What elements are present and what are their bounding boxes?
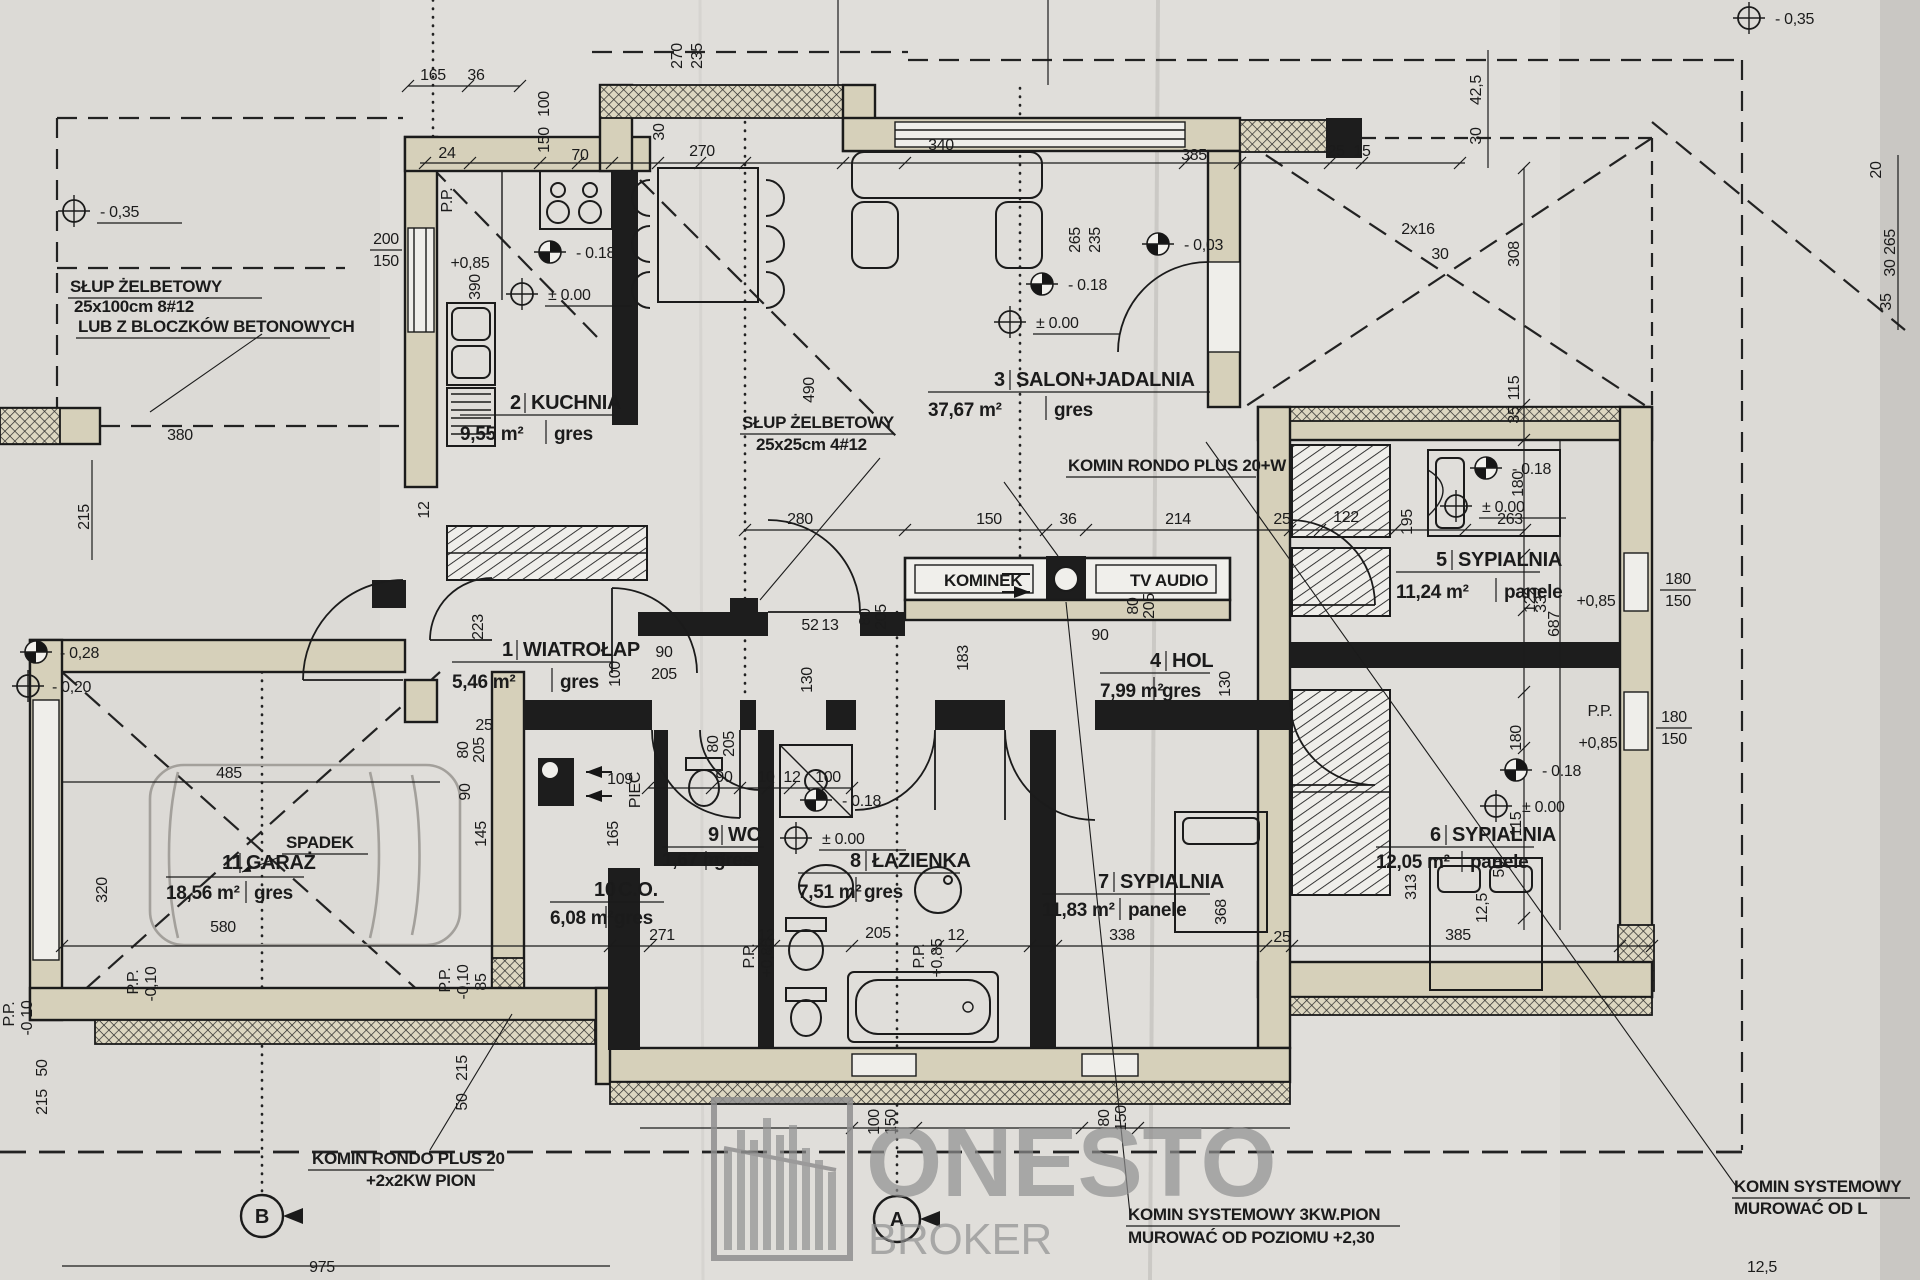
sill-level: -0,10 (455, 964, 472, 999)
window-dim: 180 (1661, 709, 1687, 726)
bath-window (852, 1054, 916, 1076)
dim-text: 25 (1273, 511, 1291, 528)
dim-text: 380 (167, 427, 193, 444)
dim-text: 320 (94, 877, 111, 903)
dim-text: 130 (799, 667, 816, 693)
dim-text: 215 (34, 1089, 51, 1115)
dim-text: 15 (1353, 143, 1371, 160)
dim-text: 580 (210, 919, 236, 936)
dim-text: 205 (721, 731, 738, 757)
dim-text: 368 (1213, 899, 1230, 925)
level-value: - 0,28 (60, 645, 100, 662)
dim-text: 25 (1327, 143, 1345, 160)
annotation-komin-prawy: MUROWAĆ OD L (1734, 1199, 1867, 1218)
dim-text: 183 (955, 645, 972, 671)
room-name: WC (728, 824, 761, 846)
sill-level: -0,10 (19, 1000, 36, 1035)
annotation-tv-audio: TV AUDIO (1130, 571, 1208, 590)
dim-text: 90 (715, 769, 733, 786)
dim-text: 12 (416, 501, 433, 519)
dim-text: 271 (649, 927, 675, 944)
room-floor: gres (560, 672, 599, 693)
window-dim: 180 (1665, 571, 1691, 588)
dim-text: 214 (1165, 511, 1191, 528)
dim-text: 50 (454, 1093, 471, 1111)
dim-text: 70 (571, 147, 589, 164)
level-value: - 0.18 (1068, 277, 1108, 294)
dim-text: 145 (473, 821, 490, 847)
dim-text: 687 (1546, 611, 1563, 637)
dim-text: 215 (454, 1055, 471, 1081)
dim-text: 180 (1508, 725, 1525, 751)
dim-text: 100 (536, 91, 553, 117)
dim-text: 223 (470, 614, 487, 640)
dim-text: 13 (821, 617, 839, 634)
dim-text: 30 (1431, 246, 1449, 263)
dim-text: 90 (457, 783, 474, 801)
window-dim: 200 (373, 231, 399, 248)
window-dim: 150 (1661, 731, 1687, 748)
sill-level: +0,85 (1579, 735, 1618, 752)
room-floor: gres (554, 424, 593, 445)
window-dim: 390 (467, 274, 484, 300)
level-value: ± 0.00 (822, 831, 865, 848)
room-area: 18,56 m² (166, 883, 240, 904)
dim-text: 100 (815, 769, 841, 786)
dim-text: 195 (1399, 509, 1416, 535)
dim-text: 42,5 (1468, 75, 1485, 105)
dim-text: 385 (1181, 147, 1207, 164)
dim-text: 338 (1109, 927, 1135, 944)
dim-text: 130 (1217, 671, 1234, 697)
room-name: SYPIALNIA (1120, 871, 1224, 893)
dim-text: 205 (471, 737, 488, 763)
room-floor: gres (714, 850, 753, 871)
annotation-komin-garaz: +2x2KW PION (366, 1171, 476, 1190)
level-value: - 0.18 (576, 245, 616, 262)
sill-level: +0,85 (929, 938, 946, 977)
blueprint-page: 1 WIATROŁAP 5,46 m² gres 2 KUCHNIA 9,55 … (0, 0, 1920, 1280)
room-area: 12,05 m² (1376, 852, 1450, 873)
room-area: 9,55 m² (460, 424, 523, 445)
level-value: - 0,03 (1184, 237, 1224, 254)
room-number: 5 (1436, 549, 1447, 571)
dim-text: 10 (757, 769, 775, 786)
room-area: 11,83 m² (1042, 900, 1115, 921)
room-number: 8 (850, 850, 861, 872)
annotation-komin-dol: MUROWAĆ OD POZIOMU +2,30 (1128, 1228, 1374, 1247)
room-area: 7,51 m² (798, 882, 861, 903)
dim-text: 122 (1333, 509, 1359, 526)
bedroom5-window (1624, 553, 1648, 611)
floorplan-drawing: 1 WIATROŁAP 5,46 m² gres 2 KUCHNIA 9,55 … (0, 0, 1920, 1280)
dim-text: 50 (1491, 860, 1508, 878)
dim-text: 30 (1882, 259, 1899, 277)
dim-text: 205 (865, 925, 891, 942)
dim-text: 30 (1468, 127, 1485, 145)
axis-label-b: B (255, 1206, 269, 1228)
sill-label: P.P. (439, 188, 456, 213)
level-value: - 0.18 (1542, 763, 1582, 780)
dim-text: 12 (783, 769, 801, 786)
kitchen-window (408, 228, 434, 332)
sill-label: P.P. (911, 944, 928, 969)
watermark-name: ONESTO (866, 1107, 1276, 1217)
dim-text: 385 (1445, 927, 1471, 944)
room-number: 9 (708, 824, 719, 846)
level-value: ± 0.00 (1522, 799, 1565, 816)
level-value: ± 0.00 (548, 287, 591, 304)
dim-text: 235 (1087, 227, 1104, 253)
annotation-spadek: SPADEK (286, 833, 355, 852)
dim-text: 205 (1141, 593, 1158, 619)
room-number: 2 (510, 392, 521, 414)
dim-text: 52 (801, 617, 819, 634)
room-area: 37,67 m² (928, 400, 1002, 421)
annotation-komin-prawy: KOMIN SYSTEMOWY (1734, 1177, 1902, 1196)
sill-level: +0,85 (1577, 593, 1616, 610)
room-floor: gres (1054, 400, 1093, 421)
dim-text: 25 (475, 717, 493, 734)
annotation-piec: PIEC (627, 772, 644, 808)
dim-text: 90 (655, 644, 673, 661)
dim-text: 80 (455, 741, 472, 759)
sill-label: P.P. (437, 968, 454, 993)
window-dim: 150 (373, 253, 399, 270)
room-name: KUCHNIA (531, 392, 621, 414)
dim-text: 80 (1125, 597, 1142, 615)
dim-text: 150 (976, 511, 1002, 528)
sill-level: -0,10 (143, 966, 160, 1001)
annotation-slup-center: SŁUP ŻELBETOWY (742, 413, 895, 432)
dim-text: 265 (1882, 229, 1899, 255)
dim-text: 12,5 (1474, 893, 1491, 923)
dim-text: 975 (309, 1259, 335, 1276)
room-name: SYPIALNIA (1452, 824, 1556, 846)
dim-text: 12,5 (1747, 1259, 1777, 1276)
dim-text: 115 (1506, 375, 1523, 400)
dim-text: 80 (857, 608, 874, 626)
room-floor: gres (1162, 681, 1201, 702)
dim-text: 205 (873, 604, 890, 630)
room-name: SALON+JADALNIA (1016, 369, 1195, 391)
room-number: 3 (994, 369, 1005, 391)
bedroom6-window (1624, 692, 1648, 750)
room-name: ŁAZIENKA (872, 850, 971, 872)
annotation-slup-left: LUB Z BLOCZKÓW BETONOWYCH (78, 317, 354, 336)
level-value: ± 0.00 (1036, 315, 1079, 332)
dim-text: 270 (689, 143, 715, 160)
dim-text: 50 (34, 1059, 51, 1077)
sill-label: P.P. (1588, 703, 1613, 720)
level-value: - 0,20 (52, 679, 92, 696)
sill-label: P.P. (125, 970, 142, 995)
room-floor: gres (254, 883, 293, 904)
watermark-sub: BROKER (868, 1215, 1052, 1264)
room-number: 6 (1430, 824, 1441, 846)
dim-text: 165 (420, 67, 446, 84)
dim-text: 485 (216, 765, 242, 782)
dim-text: 35 (1878, 293, 1895, 311)
level-value: - 0,35 (1775, 11, 1815, 28)
dim-text: 205 (651, 666, 677, 683)
dim-text: 20 (1868, 161, 1885, 179)
column-25x25 (730, 598, 758, 626)
garage-gate (33, 700, 59, 960)
room-area: 6,08 m² (550, 908, 613, 929)
room-floor: gres (614, 908, 653, 929)
level-value: ± 0.00 (1482, 499, 1525, 516)
level-value: - 0.18 (842, 793, 882, 810)
room-name: SYPIALNIA (1458, 549, 1562, 571)
dim-text: 25 (1273, 929, 1291, 946)
dim-text: 36 (1059, 511, 1077, 528)
room-name: WIATROŁAP (523, 639, 640, 661)
room-floor: panele (1128, 900, 1186, 921)
dim-text: 85 (473, 973, 490, 991)
dim-text: 122 (1522, 587, 1539, 613)
dim-text: 90 (1091, 627, 1109, 644)
sill-level: +0,85 (759, 938, 776, 977)
dim-text: 24 (438, 145, 456, 162)
room-area: 5,46 m² (452, 672, 515, 693)
dim-text: 235 (689, 43, 706, 69)
annotation-komin-garaz: KOMIN RONDO PLUS 20 (312, 1149, 505, 1168)
dim-text: 2x16 (1401, 221, 1435, 238)
dim-text: 30 (651, 123, 668, 141)
dim-text: 150 (536, 127, 553, 153)
room-name: HOL (1172, 650, 1213, 672)
annotation-kominek: KOMINEK (944, 571, 1023, 590)
annotation-slup-left: 25x100cm 8#12 (74, 297, 194, 316)
sill-level: +0,85 (451, 255, 490, 272)
room-name: C.O. (618, 879, 658, 901)
dim-text: 490 (801, 377, 818, 403)
dim-text: 12 (947, 927, 965, 944)
room-number: 1 (502, 639, 513, 661)
dim-text: 313 (1403, 874, 1420, 900)
sill-label: P.P. (741, 944, 758, 969)
dim-text: 165 (605, 821, 622, 847)
window-dim: 150 (1665, 593, 1691, 610)
dim-text: 340 (928, 137, 954, 154)
sill-label: P.P. (1, 1002, 18, 1027)
dim-text: 80 (705, 735, 722, 753)
annotation-slup-center: 25x25cm 4#12 (756, 435, 867, 454)
room-number: 4 (1150, 650, 1162, 672)
dim-text: 280 (787, 511, 813, 528)
room-floor: gres (864, 882, 903, 903)
dim-text: 100 (607, 661, 624, 687)
room-number: 7 (1098, 871, 1109, 893)
level-value: - 0,35 (100, 204, 140, 221)
room-area: 11,24 m² (1396, 582, 1469, 603)
room-name: GARAŻ (246, 851, 316, 874)
annotation-slup-left: SŁUP ŻELBETOWY (70, 277, 223, 296)
dim-text: 270 (669, 43, 686, 69)
dim-text: 265 (1067, 227, 1084, 253)
porch-column (0, 408, 60, 444)
annotation-komin-salon: KOMIN RONDO PLUS 20+W (1068, 456, 1287, 475)
bedroom7-window (1082, 1054, 1138, 1076)
level-value: - 0.18 (1512, 461, 1552, 478)
dim-text: 35 (1506, 406, 1523, 424)
dim-text: 36 (467, 67, 485, 84)
dim-text: 215 (76, 504, 93, 530)
dim-text: 308 (1506, 241, 1523, 267)
